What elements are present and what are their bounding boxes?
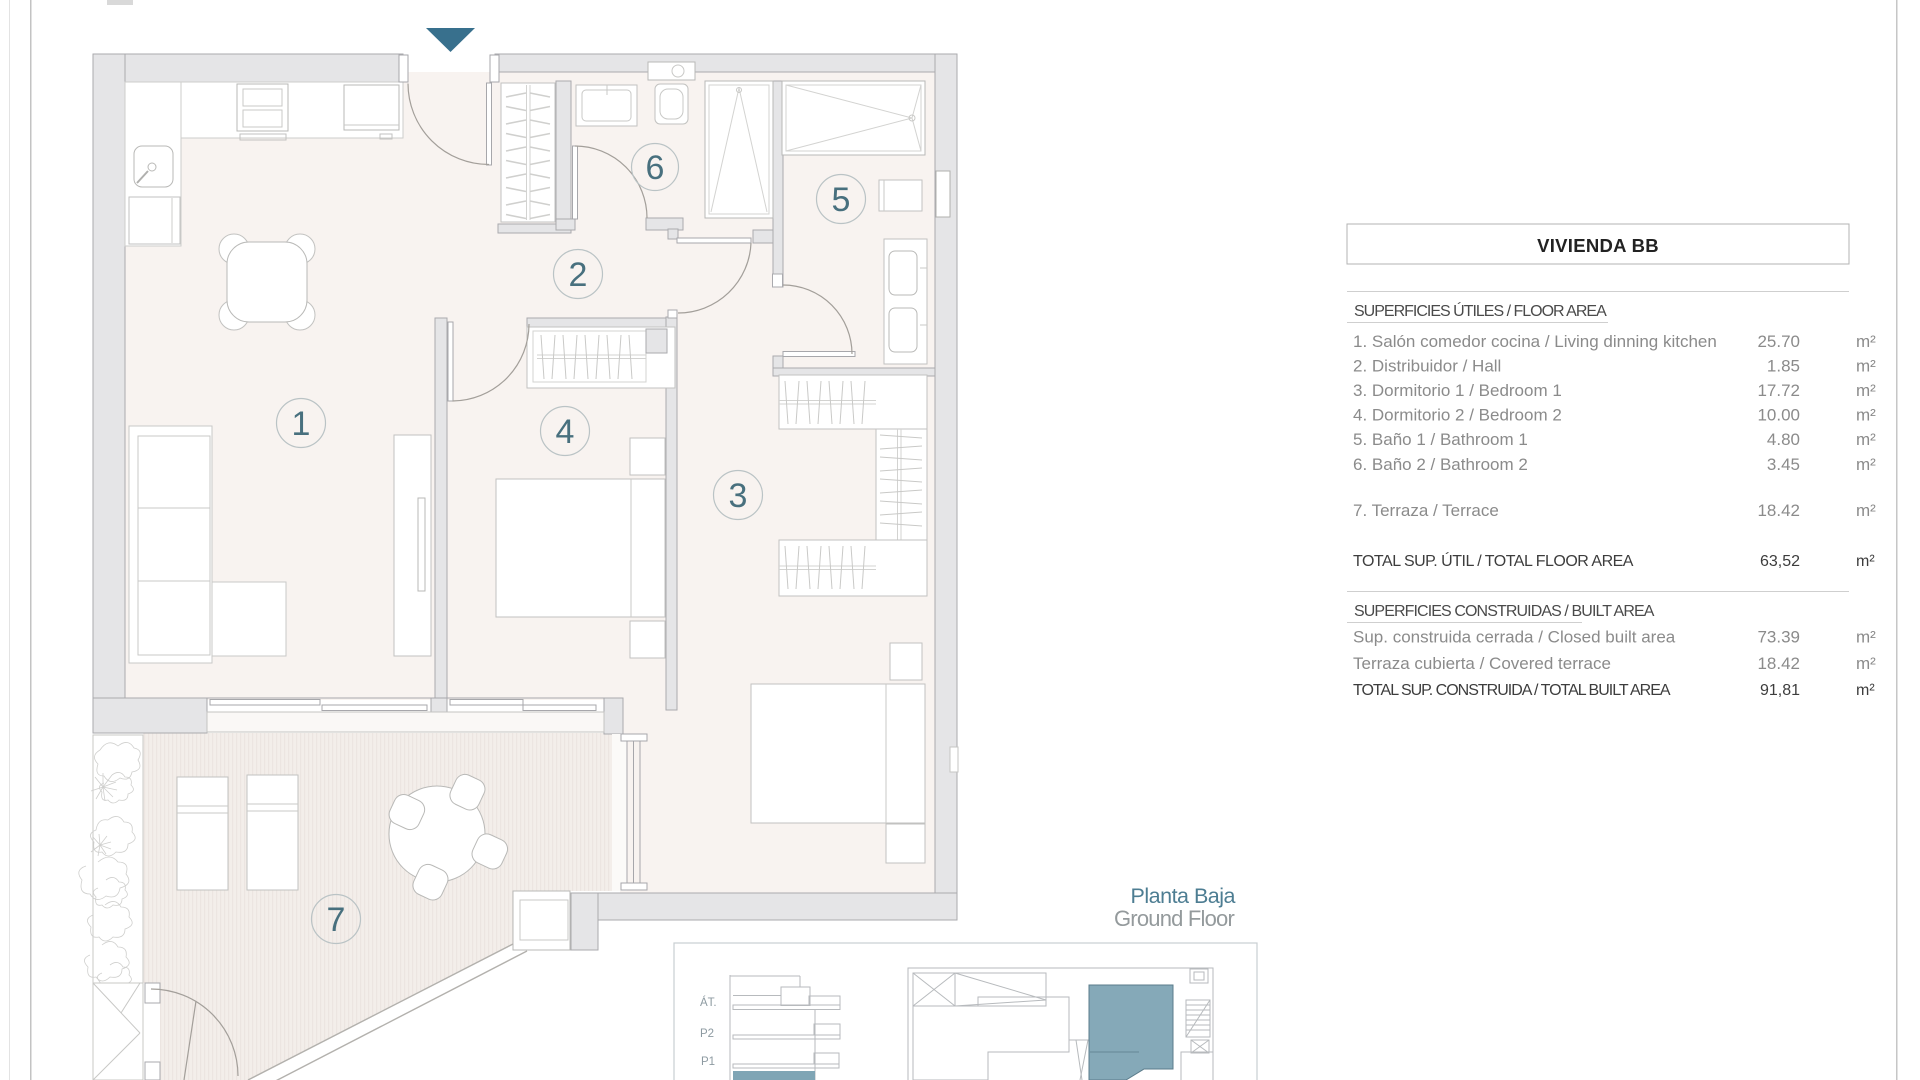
- svg-text:P2: P2: [700, 1028, 714, 1040]
- svg-text:25.70: 25.70: [1757, 332, 1800, 351]
- svg-text:m²: m²: [1856, 332, 1876, 351]
- svg-text:m²: m²: [1856, 628, 1876, 647]
- svg-text:m²: m²: [1856, 682, 1875, 699]
- svg-text:P1: P1: [701, 1056, 715, 1068]
- svg-text:1. Salón comedor cocina / Livi: 1. Salón comedor cocina / Living dinning…: [1353, 332, 1717, 351]
- svg-text:73.39: 73.39: [1757, 628, 1800, 647]
- svg-text:4. Dormitorio 2 / Bedroom 2: 4. Dormitorio 2 / Bedroom 2: [1353, 406, 1562, 425]
- svg-text:63,52: 63,52: [1760, 553, 1800, 570]
- svg-text:Ground Floor: Ground Floor: [1114, 906, 1234, 931]
- svg-text:VIVIENDA BB: VIVIENDA BB: [1537, 235, 1659, 256]
- svg-text:m²: m²: [1856, 553, 1875, 570]
- svg-text:m²: m²: [1856, 501, 1876, 520]
- svg-text:m²: m²: [1856, 455, 1876, 474]
- svg-text:4.80: 4.80: [1767, 430, 1800, 449]
- svg-text:m²: m²: [1856, 654, 1876, 673]
- svg-text:7. Terraza / Terrace: 7. Terraza / Terrace: [1353, 501, 1499, 520]
- svg-text:91,81: 91,81: [1760, 682, 1800, 699]
- svg-text:m²: m²: [1856, 406, 1876, 425]
- svg-text:m²: m²: [1856, 381, 1876, 400]
- svg-text:17.72: 17.72: [1757, 381, 1800, 400]
- svg-text:Planta Baja: Planta Baja: [1131, 884, 1236, 908]
- svg-text:ÁT.: ÁT.: [700, 996, 717, 1009]
- svg-text:10.00: 10.00: [1757, 406, 1800, 425]
- svg-text:Terraza cubierta / Covered ter: Terraza cubierta / Covered terrace: [1353, 654, 1611, 673]
- svg-text:m²: m²: [1856, 430, 1876, 449]
- svg-text:TOTAL SUP. ÚTIL / TOTAL FLOOR: TOTAL SUP. ÚTIL / TOTAL FLOOR AREA: [1353, 551, 1634, 570]
- svg-text:5. Baño 1 / Bathroom 1: 5. Baño 1 / Bathroom 1: [1353, 430, 1528, 449]
- svg-text:SUPERFICIES ÚTILES / FLOOR ARE: SUPERFICIES ÚTILES / FLOOR AREA: [1354, 301, 1607, 320]
- svg-text:SUPERFICIES CONSTRUIDAS / BUIL: SUPERFICIES CONSTRUIDAS / BUILT AREA: [1354, 603, 1655, 620]
- svg-text:1.85: 1.85: [1767, 357, 1800, 376]
- svg-text:18.42: 18.42: [1757, 654, 1800, 673]
- svg-text:3. Dormitorio 1 / Bedroom 1: 3. Dormitorio 1 / Bedroom 1: [1353, 381, 1562, 400]
- svg-text:TOTAL SUP. CONSTRUIDA / TOTAL: TOTAL SUP. CONSTRUIDA / TOTAL BUILT AREA: [1353, 682, 1671, 699]
- svg-text:3.45: 3.45: [1767, 455, 1800, 474]
- svg-text:18.42: 18.42: [1757, 501, 1800, 520]
- svg-text:m²: m²: [1856, 357, 1876, 376]
- svg-text:2. Distribuidor / Hall: 2. Distribuidor / Hall: [1353, 357, 1501, 376]
- svg-text:6. Baño 2 / Bathroom 2: 6. Baño 2 / Bathroom 2: [1353, 455, 1528, 474]
- svg-text:Sup. construida cerrada / Clos: Sup. construida cerrada / Closed built a…: [1353, 628, 1676, 647]
